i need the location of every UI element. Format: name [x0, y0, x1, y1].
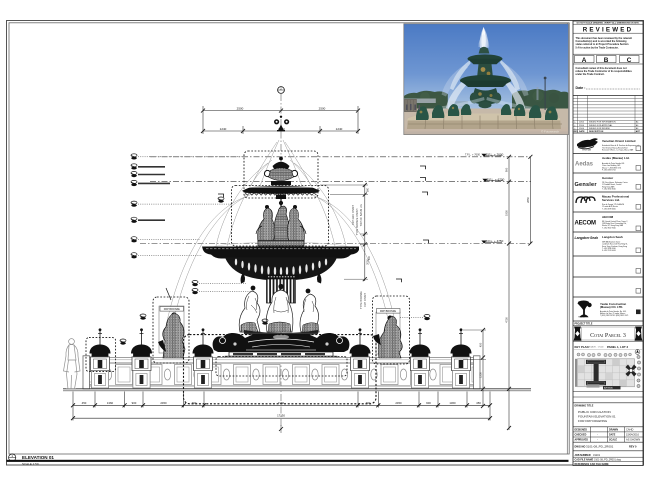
svg-text:© Fotosearch: © Fotosearch: [541, 130, 559, 134]
svg-text:2500: 2500: [319, 107, 326, 111]
svg-text:CHECKED: CHECKED: [575, 433, 587, 436]
svg-text:1360: 1360: [449, 401, 456, 405]
svg-text:Cotai Parcel 3: Cotai Parcel 3: [590, 333, 626, 339]
svg-text:2050: 2050: [367, 259, 370, 265]
svg-text:450: 450: [479, 342, 483, 347]
svg-text:5.4 for action by the Trade Co: 5.4 for action by the Trade Contractor.: [576, 46, 619, 49]
svg-text:Date :: Date :: [576, 86, 586, 90]
svg-text:Aedas: Aedas: [575, 162, 594, 168]
svg-text:2450: 2450: [395, 401, 402, 405]
svg-text:F +852 2576 0416: F +852 2576 0416: [602, 250, 616, 252]
svg-text:REVIEWED: REVIEWED: [583, 26, 634, 33]
svg-text:900: 900: [505, 167, 509, 172]
svg-text:Venetian Orient Limited: Venetian Orient Limited: [602, 139, 636, 143]
svg-text:ISSUED FOR APPROVAL: ISSUED FOR APPROVAL: [589, 124, 613, 127]
svg-text:YEATIE: YEATIE: [578, 316, 586, 319]
svg-text:TYPE BRONZE: TYPE BRONZE: [360, 291, 363, 309]
svg-text:ELEVATION 01: ELEVATION 01: [22, 455, 54, 460]
svg-text:Aedas (Macau) Ltd.: Aedas (Macau) Ltd.: [602, 156, 630, 160]
svg-text:DRAWING TITLE: DRAWING TITLE: [575, 404, 594, 407]
svg-text:JOB NUMBER: JOB NUMBER: [575, 454, 591, 457]
svg-text:DRAWN: DRAWN: [609, 428, 618, 431]
svg-text:1240: 1240: [220, 127, 227, 131]
svg-text:REV 0: REV 0: [629, 445, 637, 449]
svg-text:1950: 1950: [505, 210, 509, 216]
svg-text:1240: 1240: [336, 127, 343, 131]
svg-text:2450: 2450: [160, 401, 167, 405]
svg-text:Gensler: Gensler: [602, 176, 614, 180]
svg-text:760: 760: [192, 401, 197, 405]
svg-text:FRP FINISH: FRP FINISH: [364, 293, 367, 307]
svg-text:2500: 2500: [237, 107, 244, 111]
svg-text:Gensler: Gensler: [575, 182, 598, 188]
svg-text:REFERENCE CAD FILE NAME: REFERENCE CAD FILE NAME: [575, 463, 610, 466]
svg-text:DATE: DATE: [609, 433, 616, 436]
svg-text:Langdon·Seah: Langdon·Seah: [575, 236, 599, 240]
svg-text:Services Ltd.: Services Ltd.: [602, 198, 620, 202]
svg-text:2850: 2850: [526, 197, 530, 203]
svg-text:900: 900: [132, 401, 137, 405]
svg-text:1360: 1360: [107, 401, 114, 405]
svg-text:DO NOT SCALE DRAWING. VERIFY A: DO NOT SCALE DRAWING. VERIFY ALL DIMENSI…: [577, 22, 640, 25]
svg-text:ISSUED FOR INFORMATION: ISSUED FOR INFORMATION: [589, 121, 616, 124]
svg-text:B: B: [604, 57, 609, 64]
svg-text:PANEL 1, LOT 3: PANEL 1, LOT 3: [607, 345, 628, 349]
svg-text:T +853 2878 6625: T +853 2878 6625: [602, 208, 616, 210]
svg-text:under the Trade Contract.: under the Trade Contract.: [576, 73, 605, 76]
svg-text:450: 450: [476, 401, 481, 405]
svg-text:TOP OF BASIN LVL: TOP OF BASIN LVL: [360, 203, 363, 226]
svg-text:KEY PLAN: KEY PLAN: [575, 345, 589, 349]
svg-text:560: 560: [367, 187, 370, 192]
svg-text:1250: 1250: [479, 372, 483, 378]
svg-text:1: 1: [11, 454, 13, 458]
svg-text:AVENIDA: AVENIDA: [604, 387, 613, 390]
svg-text:C: C: [627, 57, 632, 64]
svg-text:15/04/2016: 15/04/2016: [626, 432, 640, 436]
svg-text:VENETIAN: VENETIAN: [582, 149, 592, 152]
svg-text:31101: 31101: [593, 453, 601, 457]
svg-text:T +852 3922 9000: T +852 3922 9000: [602, 227, 616, 229]
svg-text:FRP BRONZE: FRP BRONZE: [164, 308, 180, 311]
svg-text:FOR FRP DRAWING: FOR FRP DRAWING: [578, 419, 608, 423]
svg-text:SCALE 1 : 17,500: SCALE 1 : 17,500: [589, 346, 603, 349]
svg-text:F +853 2833 1702: F +853 2833 1702: [602, 170, 616, 172]
svg-text:22/04: 22/04: [579, 125, 585, 127]
svg-text:AS SHOWN: AS SHOWN: [626, 438, 640, 442]
svg-text:Langdon Seah: Langdon Seah: [602, 235, 623, 239]
svg-text:10/05: 10/05: [579, 122, 585, 124]
svg-text:(Macau) CO. LTD.: (Macau) CO. LTD.: [600, 305, 623, 309]
svg-text:15/04: 15/04: [579, 128, 585, 130]
svg-text:SCALE 1:50: SCALE 1:50: [22, 462, 39, 466]
svg-text:Executive Offices - L2, Taipa,: Executive Offices - L2, Taipa, Macau SAR: [602, 149, 634, 152]
svg-text:DWG NO: DWG NO: [575, 445, 586, 449]
svg-text:SCALE: SCALE: [609, 439, 618, 442]
svg-text:3101-08_PD_2R001: 3101-08_PD_2R001: [586, 445, 614, 449]
svg-text:APPROVED: APPROVED: [575, 439, 589, 442]
svg-text:CAD FILE NAME: CAD FILE NAME: [575, 459, 594, 462]
svg-text:4750: 4750: [505, 317, 509, 323]
svg-text:450: 450: [82, 401, 87, 405]
svg-text:FOUNTAIN ELEVATION 01: FOUNTAIN ELEVATION 01: [578, 415, 616, 419]
svg-text:TYPE BRONZE FINISH: TYPE BRONZE FINISH: [356, 209, 359, 236]
svg-text:7160: 7160: [278, 401, 285, 405]
svg-text:3101-08_PD_2R001.dwg: 3101-08_PD_2R001.dwg: [594, 459, 622, 462]
svg-text:CAHD: CAHD: [626, 427, 633, 431]
svg-text:AECOM: AECOM: [602, 215, 614, 219]
svg-text:T (853) 2832 2078 F (853) 283: T (853) 2832 2078 F (853) 2832 2079: [600, 315, 628, 317]
svg-text:A: A: [582, 57, 587, 64]
svg-text:AECOM: AECOM: [575, 221, 597, 227]
svg-text:-: -: [597, 439, 598, 442]
svg-text:FRP GRC FINISH: FRP GRC FINISH: [352, 205, 355, 225]
svg-text:-: -: [597, 433, 598, 436]
svg-text:900: 900: [426, 401, 431, 405]
svg-text:17130: 17130: [277, 414, 285, 418]
svg-text:DESIGNED: DESIGNED: [575, 428, 588, 431]
svg-text:T.P.L. + 7600: T.P.L. + 7600: [465, 152, 481, 156]
svg-text:PUBLIC CIRCULATION: PUBLIC CIRCULATION: [578, 410, 611, 414]
svg-text:760: 760: [366, 401, 371, 405]
svg-text:ISSUED FOR REVIEW: ISSUED FOR REVIEW: [589, 128, 610, 130]
svg-text:T +852 2810 8100: T +852 2810 8100: [602, 189, 616, 191]
svg-text:FRP BRONZE: FRP BRONZE: [380, 310, 396, 313]
